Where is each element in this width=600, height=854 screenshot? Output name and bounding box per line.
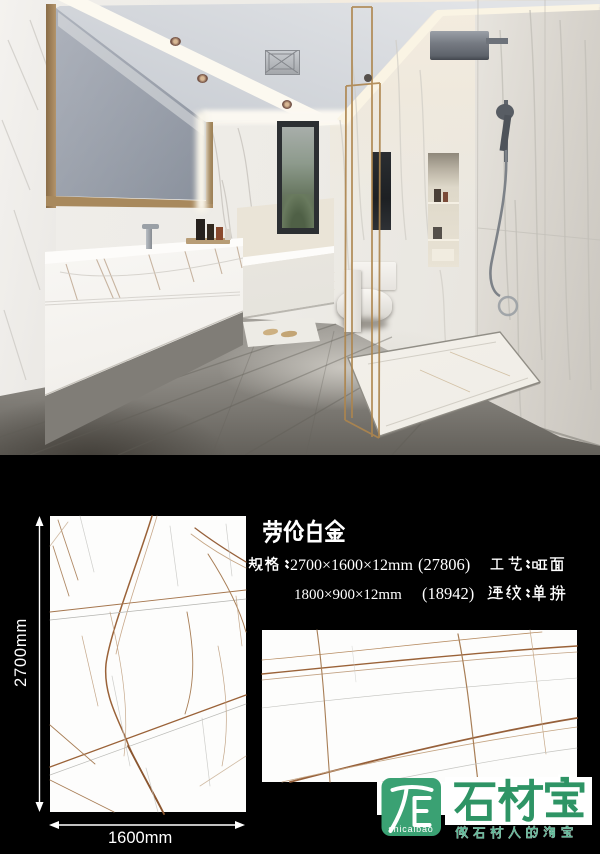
svg-text:1800×900×12mm: 1800×900×12mm bbox=[294, 587, 402, 603]
svg-text:2700mm: 2700mm bbox=[12, 618, 30, 687]
svg-text:2700×1600×12mm: 2700×1600×12mm bbox=[290, 557, 413, 574]
svg-text:(27806): (27806) bbox=[418, 555, 470, 574]
svg-text:shicaibao: shicaibao bbox=[388, 824, 433, 834]
svg-text:1600mm: 1600mm bbox=[108, 829, 172, 847]
svg-text:(18942): (18942) bbox=[422, 584, 474, 603]
